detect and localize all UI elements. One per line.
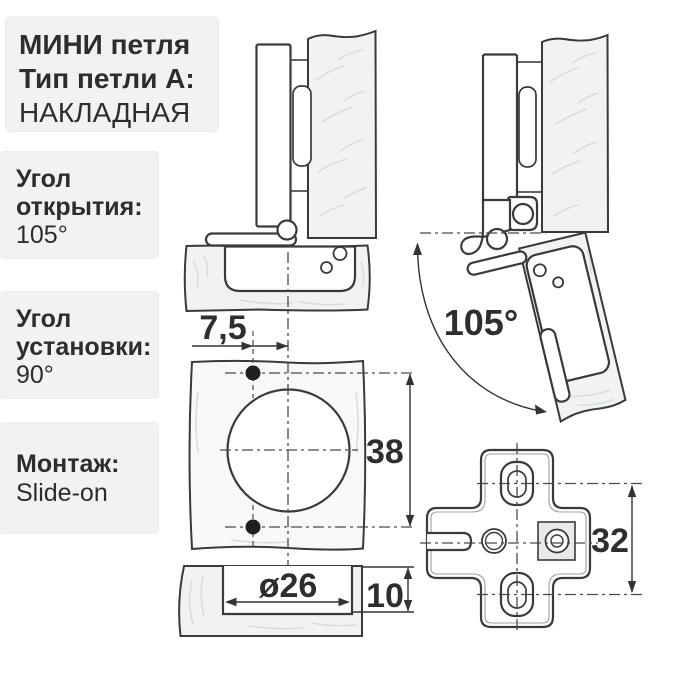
- installation-angle-box: Угол установки: 90°: [0, 292, 158, 398]
- hinge-pivot: [278, 221, 297, 240]
- cup-flange: [466, 250, 527, 276]
- cup-hole: [334, 247, 347, 260]
- cabinet-panel: [308, 31, 376, 238]
- mounting-plate-side: [519, 87, 536, 167]
- product-title: МИНИ петля: [19, 28, 218, 62]
- mounting-value: Slide-on: [16, 479, 158, 508]
- title-box: МИНИ петля Тип петли А: НАКЛАДНАЯ: [6, 17, 218, 131]
- opening-angle-value: 105°: [16, 221, 158, 249]
- cup-offset-dimension: 7,5: [199, 309, 246, 347]
- cup-hole: [321, 262, 332, 273]
- fork-slot: [427, 533, 471, 550]
- hinge-spec-sheet: 105° 7,5: [0, 0, 700, 700]
- opening-angle-box: Угол открытия: 105°: [0, 152, 158, 258]
- installation-angle-label2: установки:: [16, 333, 158, 361]
- mounting-box: Монтаж: Slide-on: [0, 423, 158, 533]
- plate-hole-spacing-dimension: 32: [591, 522, 629, 560]
- hinge-pivot: [487, 229, 507, 249]
- hinge-pivot: [513, 204, 533, 224]
- hole-spacing-dimension: 38: [366, 433, 404, 471]
- installation-angle-label: Угол: [16, 305, 158, 333]
- opening-angle-label2: открытия:: [16, 193, 158, 221]
- hinge-type-label: Тип петли А:: [19, 62, 218, 96]
- opening-angle-label: Угол: [16, 165, 158, 193]
- mounting-label: Монтаж:: [16, 450, 158, 479]
- plate-hole: [546, 530, 569, 553]
- hinge-type-value: НАКЛАДНАЯ: [19, 96, 218, 130]
- hinge-arm: [483, 55, 517, 205]
- hinge-arm: [257, 45, 291, 227]
- mounting-plate-drawing: 32: [420, 443, 642, 634]
- opening-angle-label: 105°: [444, 302, 518, 343]
- cup-cross-section-drawing: ø26 10: [179, 566, 414, 636]
- installation-angle-value: 90°: [16, 361, 158, 389]
- cup-depth-dimension: 10: [366, 577, 404, 615]
- open-hinge-drawing: 105°: [413, 35, 627, 434]
- screw-hole: [246, 366, 261, 381]
- screw-hole: [246, 520, 261, 535]
- cabinet-panel: [542, 35, 608, 232]
- mounting-plate-side: [293, 86, 311, 166]
- cup-diameter-dimension: ø26: [259, 567, 318, 605]
